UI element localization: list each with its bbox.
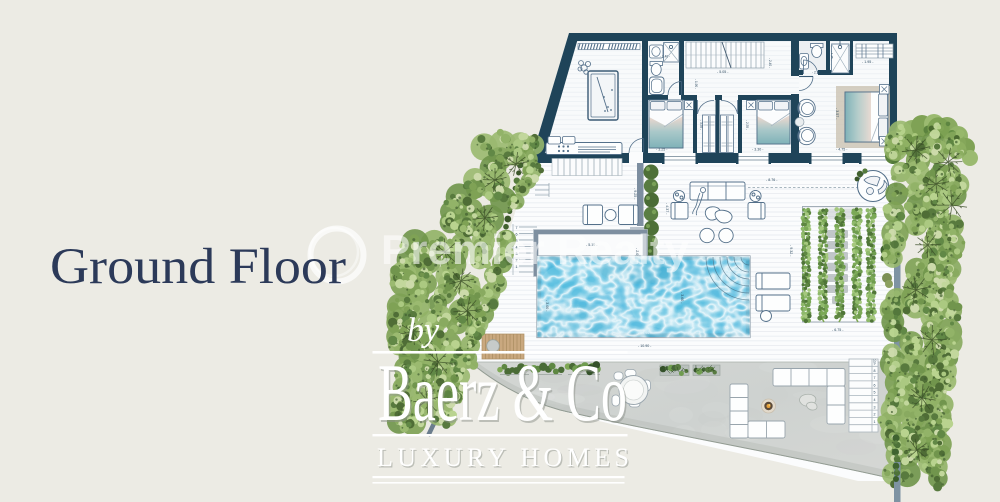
svg-text:- 3.57 -: - 3.57 - <box>835 108 839 120</box>
svg-text:- 30.90 -: - 30.90 - <box>638 331 652 335</box>
svg-text:Ground Floor: Ground Floor <box>50 239 346 295</box>
svg-text:by: by <box>407 312 440 349</box>
svg-text:- 9.32 -: - 9.32 - <box>789 245 793 257</box>
svg-text:- 3.60 -: - 3.60 - <box>680 292 684 304</box>
svg-text:- 1.95 -: - 1.95 - <box>862 60 874 64</box>
svg-text:1: 1 <box>874 420 876 424</box>
svg-text:- 4.37 -: - 4.37 - <box>665 203 669 215</box>
svg-text:- 3.30 -: - 3.30 - <box>752 148 764 152</box>
svg-text:Premier Realty: Premier Realty <box>381 226 690 273</box>
svg-text:- 5.05 -: - 5.05 - <box>717 70 729 74</box>
svg-text:2: 2 <box>874 413 876 417</box>
svg-text:6: 6 <box>874 383 876 387</box>
svg-text:4: 4 <box>874 398 876 402</box>
svg-text:- 9.25 -: - 9.25 - <box>633 188 637 200</box>
svg-text:7: 7 <box>874 376 876 380</box>
svg-text:- 3.25 -: - 3.25 - <box>656 148 668 152</box>
svg-text:5: 5 <box>874 391 876 395</box>
svg-text:- 3.55 -: - 3.55 - <box>699 120 703 130</box>
svg-text:3: 3 <box>874 405 876 409</box>
svg-text:Baerz & Co: Baerz & Co <box>378 347 627 438</box>
svg-text:- 2.55 -: - 2.55 - <box>745 120 749 130</box>
svg-text:- 10.90 -: - 10.90 - <box>638 344 652 348</box>
svg-text:- 3.00 -: - 3.00 - <box>545 300 549 312</box>
svg-text:- 2.40 -: - 2.40 - <box>768 58 772 68</box>
svg-text:- 8.76 -: - 8.76 - <box>766 178 778 182</box>
svg-text:- 6.75 -: - 6.75 - <box>832 328 844 332</box>
svg-text:10: 10 <box>873 359 877 363</box>
svg-text:- 2.70 -: - 2.70 - <box>812 71 822 75</box>
svg-text:- 1.45 -: - 1.45 - <box>830 51 834 61</box>
svg-text:- 4.75 -: - 4.75 - <box>836 148 848 152</box>
svg-text:8: 8 <box>874 369 876 373</box>
svg-text:- 1.90 -: - 1.90 - <box>694 79 698 89</box>
svg-text:- 1.40 -: - 1.40 - <box>660 55 670 59</box>
